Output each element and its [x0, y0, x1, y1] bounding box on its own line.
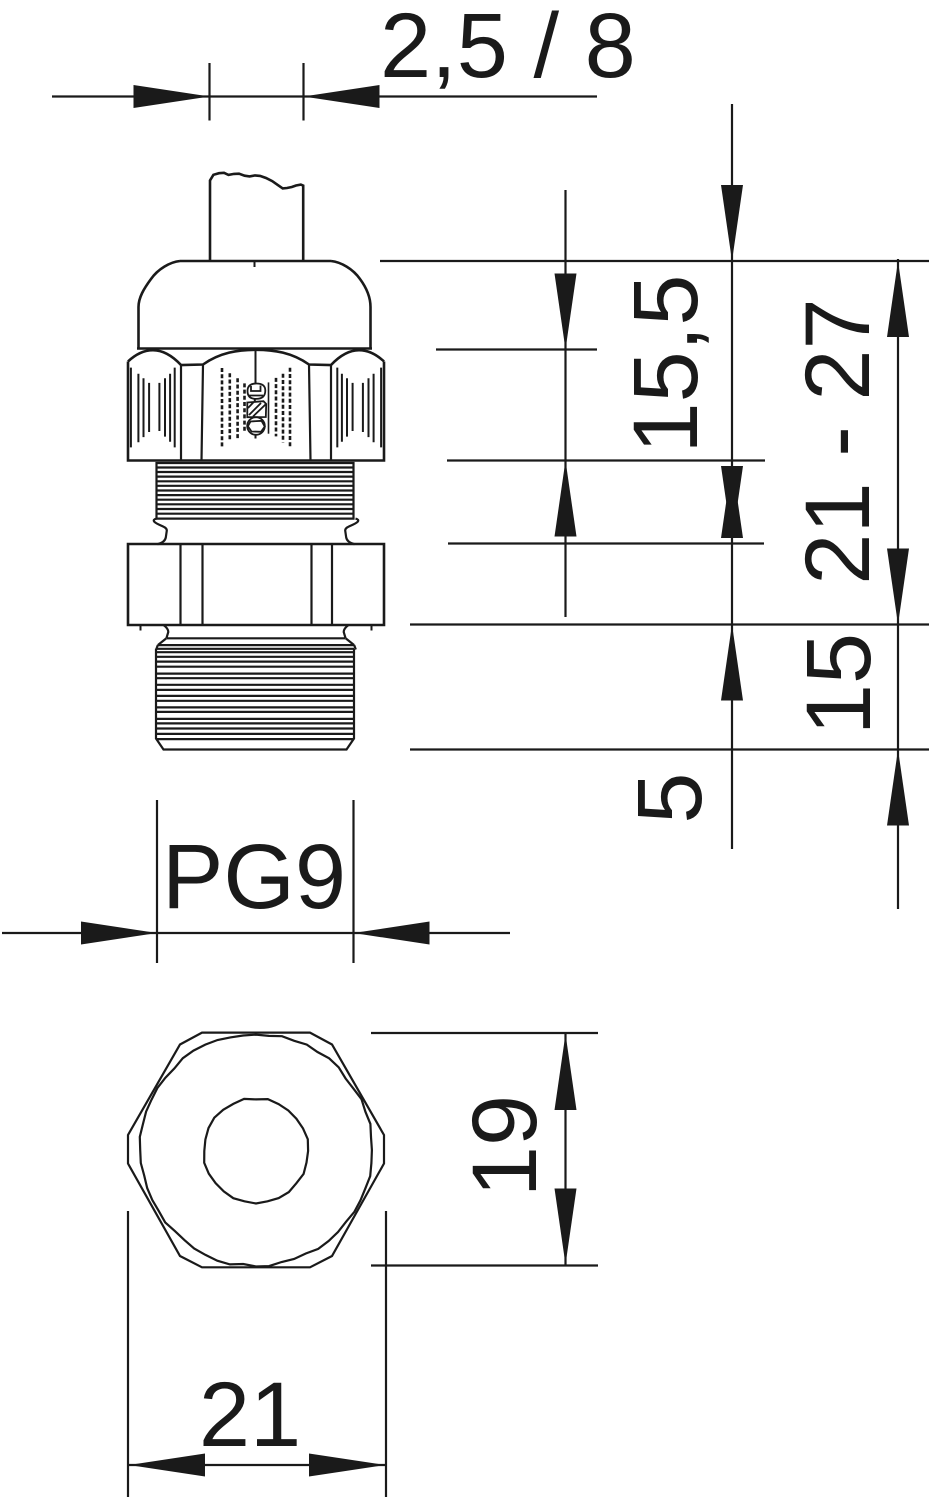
svg-text:21 - 27: 21 - 27	[787, 298, 889, 584]
svg-text:PG9: PG9	[162, 826, 346, 928]
svg-text:5: 5	[619, 772, 721, 823]
svg-text:21: 21	[199, 1364, 301, 1466]
svg-text:15,5: 15,5	[615, 274, 717, 453]
svg-text:2,5 / 8: 2,5 / 8	[380, 0, 636, 97]
svg-text:15: 15	[788, 633, 890, 735]
svg-text:19: 19	[454, 1095, 556, 1197]
